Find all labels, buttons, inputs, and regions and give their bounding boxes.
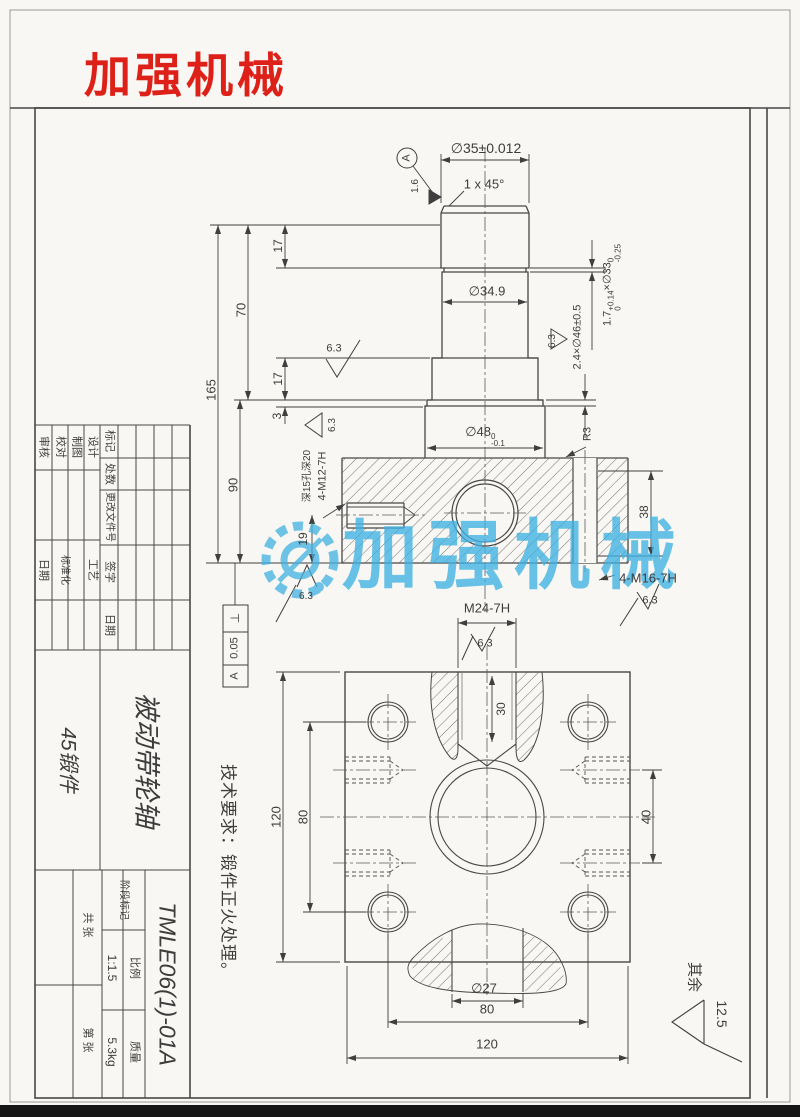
dim-40-label: 40: [640, 810, 653, 824]
bottom-view-hidden-holes: [345, 757, 630, 876]
scanned-engineering-drawing: 加强机械 加强机械 ∅35±0.012 1 x 45° A 1.6 ∅34.9 …: [0, 0, 800, 1117]
dim-30-label: 30: [495, 702, 507, 715]
thread-m16-label: 4-M16-7H: [619, 572, 677, 585]
dim-165-label: 165: [205, 379, 218, 401]
titleblock-stage-label: 阶段标记: [118, 880, 128, 920]
dim-17-mid-label: 17: [272, 372, 284, 385]
company-logo-text: 加强机械: [84, 52, 288, 99]
roughness-63-base: 6.3: [299, 592, 313, 602]
tolerance-value: 0.05: [230, 637, 241, 658]
dim-dia35-label: ∅35±0.012: [451, 141, 522, 155]
dim-groove1-label: 1.7+0.140×∅330-0.25: [603, 244, 622, 326]
roughness-63-shoulder: 6.3: [326, 344, 341, 355]
scan-artifact-strip: [0, 1105, 800, 1117]
dim-70-label: 70: [235, 303, 248, 317]
dim-19-label: 19: [297, 532, 309, 545]
tolerance-datum-ref: A: [230, 672, 241, 679]
thread-m12-label: 4-M12-7H: [318, 452, 329, 501]
thread-m12-depth-note: 深15孔深20: [303, 450, 313, 502]
roughness-63-m24: 6.3: [477, 639, 492, 650]
titleblock-material: 45锻件: [58, 727, 79, 792]
dim-dia48-label: ∅480-0.1: [465, 425, 505, 447]
dim-38-label: 38: [638, 505, 650, 518]
titleblock-rev-signature: 签字: [104, 561, 115, 583]
titleblock-rev-count: 处数: [104, 463, 115, 485]
roughness-other-value: 12.5: [715, 1000, 729, 1027]
roughness-other-icon: [672, 1000, 742, 1062]
dim-80-horizontal-label: 80: [480, 1003, 494, 1016]
titleblock-role-check: 校对: [55, 436, 66, 458]
titleblock-role-standard: 标准化: [59, 555, 69, 585]
titleblock-rev-fileno: 更改文件号: [104, 492, 114, 542]
dim-chamfer-label: 1 x 45°: [464, 178, 505, 191]
dim-120-horizontal-label: 120: [476, 1038, 498, 1051]
bottom-view-dimensions: [276, 618, 662, 1064]
dim-17-top-label: 17: [272, 239, 284, 252]
roughness-63-m16: 6.3: [642, 596, 657, 607]
tolerance-symbol: ⊥: [229, 613, 241, 623]
roughness-63-m12: 6.3: [328, 418, 338, 432]
dim-90-label: 90: [227, 478, 240, 492]
titleblock-scale-label: 比例: [129, 957, 140, 979]
titleblock-role-audit: 审核: [38, 436, 49, 458]
dim-dia349-label: ∅34.9: [469, 285, 506, 298]
roughness-other-label: 其余: [687, 962, 702, 992]
titleblock-part-name: 被动带轮轴: [133, 693, 160, 828]
dim-120-vertical-label: 120: [270, 806, 283, 828]
roughness-63-shaft: 6.3: [548, 334, 558, 348]
titleblock-rev-mark: 标记: [104, 430, 115, 452]
dim-r3-label: R3: [583, 427, 594, 441]
dim-3-label: 3: [271, 413, 283, 420]
drawing-frame: [10, 108, 790, 1098]
titleblock-sheet-no: 第 张: [82, 1027, 93, 1052]
technical-requirements-note: 技术要求：锻件正火处理。: [220, 764, 237, 980]
dim-dia27-label: ∅27: [471, 982, 497, 995]
titleblock-role-draft: 制图: [71, 436, 82, 458]
titleblock-label-date-left: 日期: [38, 559, 49, 581]
dim-80-vertical-label: 80: [297, 810, 310, 824]
titleblock-role-process: 工艺: [87, 559, 98, 581]
titleblock-rev-date: 日期: [104, 614, 115, 636]
bottom-view-centerlines: [320, 646, 655, 995]
titleblock-mass-label: 质量: [129, 1041, 140, 1063]
thread-m24-label: M24-7H: [464, 602, 510, 615]
datum-a-label: A: [402, 154, 413, 161]
dim-groove2-label: 2.4×∅46±0.5: [573, 305, 584, 370]
titleblock-drawing-number: TMLE06(1)-01A: [156, 902, 179, 1066]
roughness-1-6-label: 1.6: [411, 179, 421, 193]
titleblock-mass-value: 5.3kg: [106, 1037, 118, 1066]
titleblock-sheet-total: 共 张: [82, 912, 93, 937]
titleblock-role-design: 设计: [87, 436, 98, 458]
titleblock-scale-value: 1:1.5: [106, 955, 118, 982]
